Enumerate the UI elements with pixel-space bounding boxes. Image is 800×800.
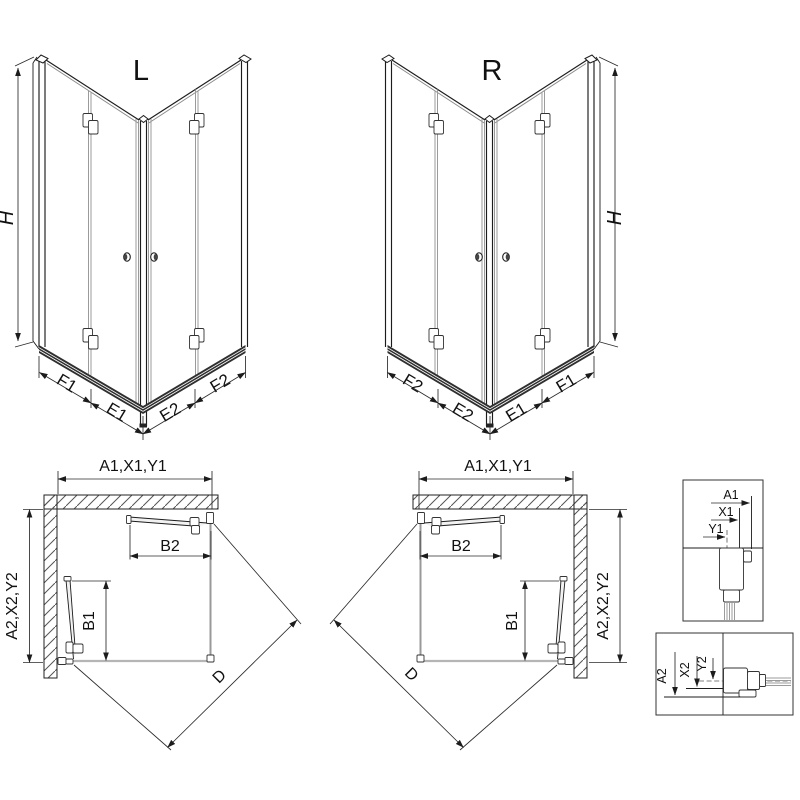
left-plan-b1-label: B1 xyxy=(81,611,98,631)
detail-top-y1-label: Y1 xyxy=(708,522,723,536)
left-plan-top-dim-label: A1,X1,Y1 xyxy=(99,458,167,475)
detail-box-bottom: A2 X2 Y2 xyxy=(655,633,793,715)
right-view-height-label: H xyxy=(604,210,626,225)
right-plan-top-wall xyxy=(413,495,587,509)
right-plan-view: A1,X1,Y1 A2,X2,Y2 B2 B1 D xyxy=(330,458,627,750)
technical-drawing-page: L H F1 E1 E2 F2 R H F2 E2 E1 F1 A1,X1,Y1… xyxy=(0,0,800,800)
right-plan-b1-label: B1 xyxy=(504,611,521,631)
left-plan-view: A1,X1,Y1 A2,X2,Y2 B2 B1 D xyxy=(4,458,301,750)
detail-bottom-a2-label: A2 xyxy=(655,668,669,683)
right-plan-geometry xyxy=(330,471,573,750)
left-plan-diagonal-label: D xyxy=(210,667,230,687)
right-view-dim-f2: F2 xyxy=(399,370,426,397)
left-3d-view: L H F1 E1 E2 F2 xyxy=(0,55,251,440)
left-plan-top-wall xyxy=(44,495,218,509)
left-plan-b2-label: B2 xyxy=(160,538,180,555)
right-plan-side-wall xyxy=(574,495,587,678)
right-plan-diagonal-label: D xyxy=(401,665,421,685)
detail-top-x1-label: X1 xyxy=(718,505,733,519)
left-view-label: L xyxy=(133,55,149,87)
left-plan-side-wall xyxy=(44,495,57,678)
detail-box-top: A1 X1 Y1 xyxy=(683,480,763,621)
right-plan-b2-label: B2 xyxy=(451,538,471,555)
left-plan-side-dim-label: A2,X2,Y2 xyxy=(4,572,21,640)
shower-enclosure-diagram: L H F1 E1 E2 F2 R H F2 E2 E1 F1 A1,X1,Y1… xyxy=(0,0,800,800)
detail-bottom-x2-label: X2 xyxy=(678,662,692,677)
left-view-height-label: H xyxy=(0,210,18,225)
right-3d-view: R H F2 E2 E1 F1 xyxy=(382,55,626,440)
right-plan-top-dim-label: A1,X1,Y1 xyxy=(464,458,532,475)
left-view-dim-f2: F2 xyxy=(207,370,234,397)
detail-top-a1-label: A1 xyxy=(723,488,738,502)
left-plan-geometry xyxy=(58,471,301,750)
right-plan-side-dim-label: A2,X2,Y2 xyxy=(595,572,612,640)
right-view-label: R xyxy=(482,55,503,87)
